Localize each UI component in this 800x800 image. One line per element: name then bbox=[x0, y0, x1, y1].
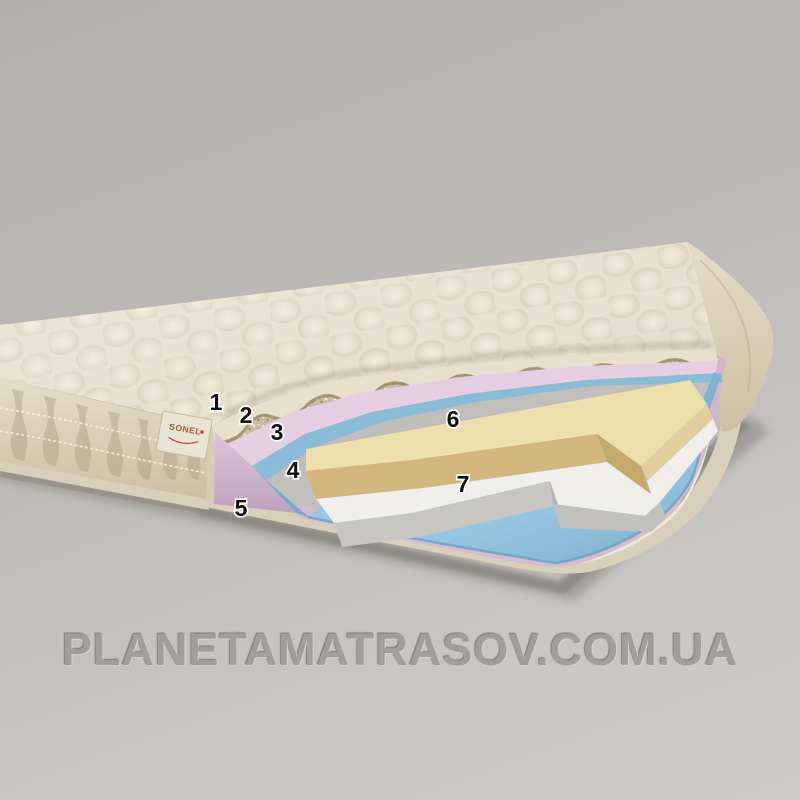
brand-tag: SONEL bbox=[156, 411, 212, 459]
site-watermark: PLANETAMATRASOV.COM.UA bbox=[0, 624, 800, 676]
callout-5: 5 bbox=[235, 495, 248, 521]
callout-1: 1 bbox=[210, 389, 223, 415]
callout-2: 2 bbox=[240, 402, 253, 428]
callout-7: 7 bbox=[457, 471, 470, 497]
mattress-cutaway-illustration: SONEL 1 2 3 4 5 6 7 bbox=[0, 0, 800, 800]
callout-3: 3 bbox=[271, 419, 284, 445]
product-diagram-scene: SONEL 1 2 3 4 5 6 7 PLANETAMATRASOV.COM.… bbox=[0, 0, 800, 800]
callout-6: 6 bbox=[447, 406, 460, 432]
callout-4: 4 bbox=[287, 457, 300, 483]
